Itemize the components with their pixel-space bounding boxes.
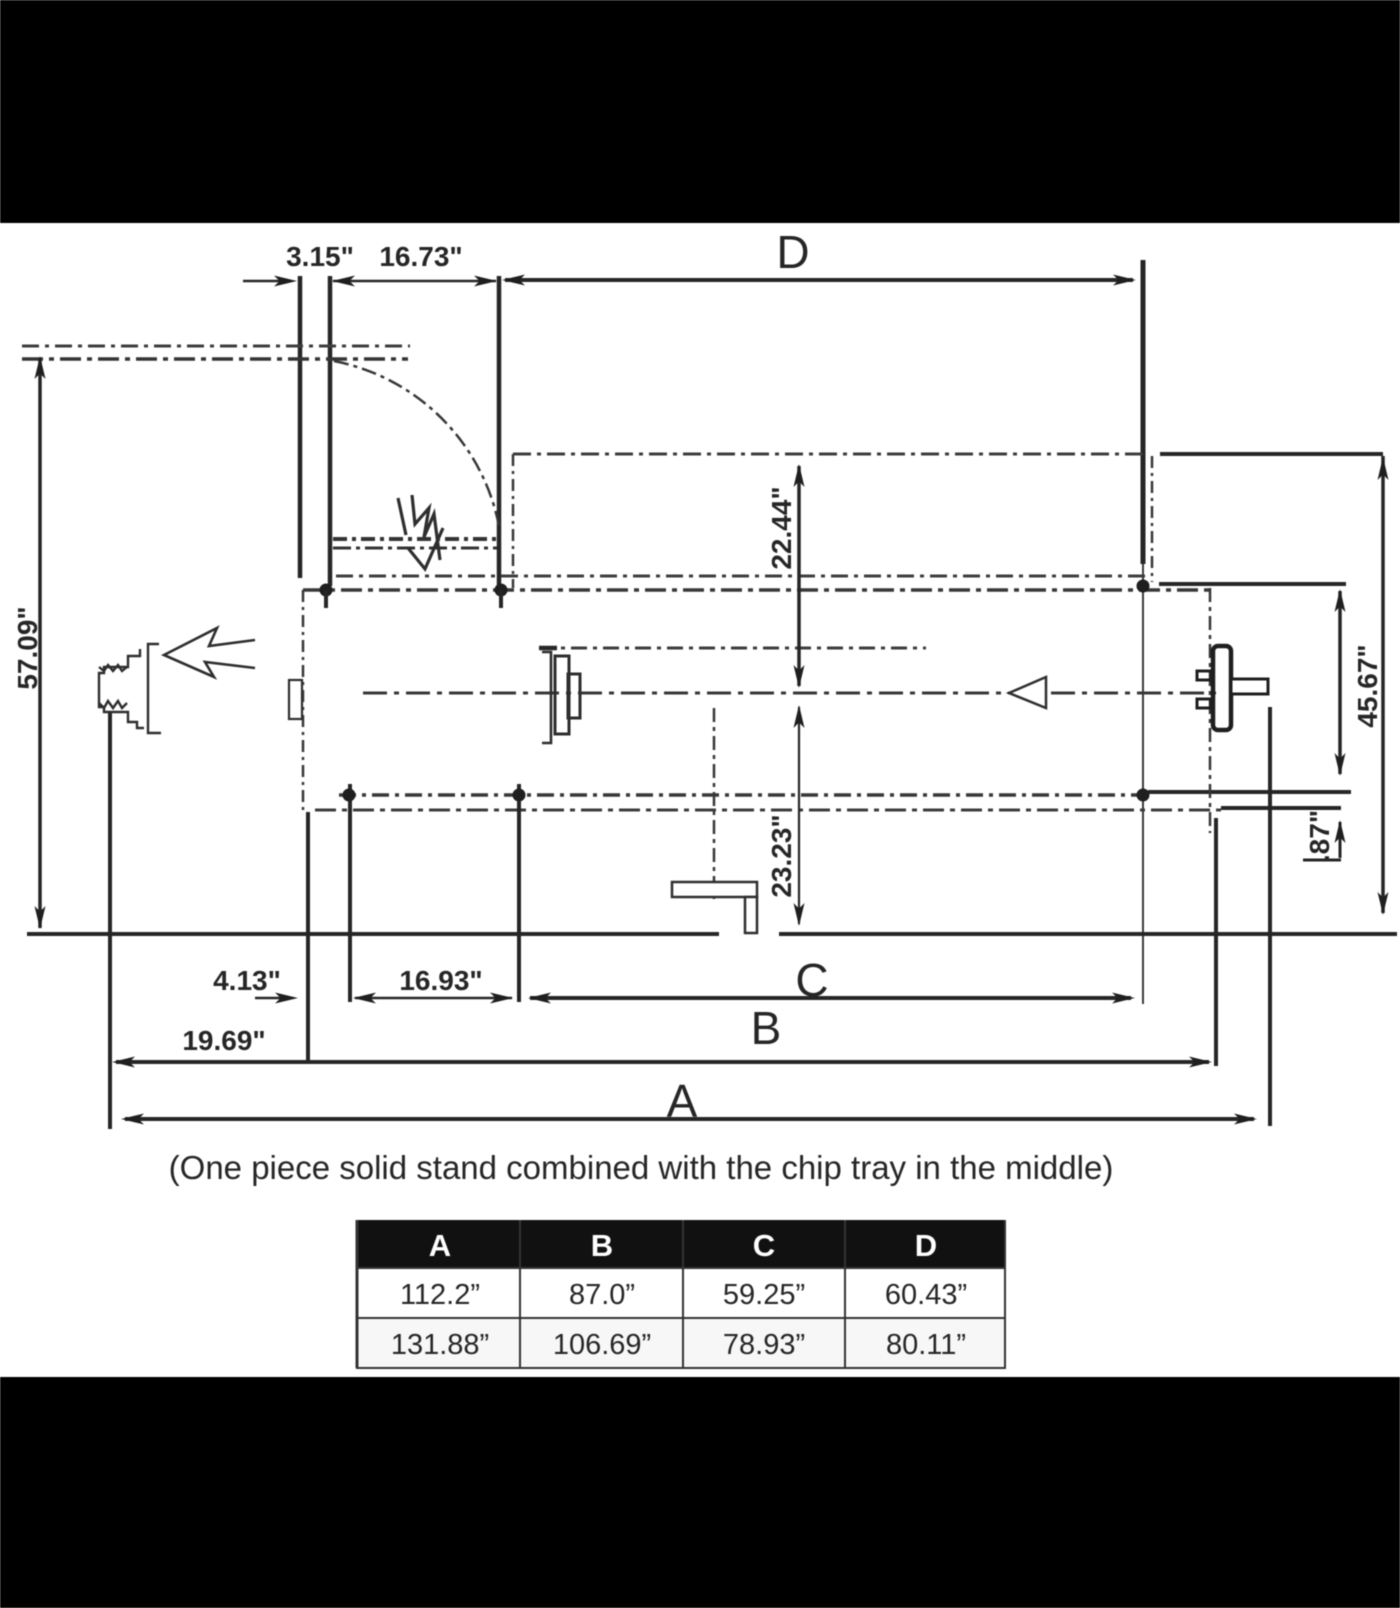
svg-text:16.93": 16.93" [399,965,482,996]
svg-text:106.69”: 106.69” [553,1329,651,1361]
svg-text:131.88”: 131.88” [391,1329,489,1361]
svg-text:B: B [591,1228,613,1263]
svg-text:59.25”: 59.25” [723,1279,805,1311]
svg-text:80.11”: 80.11” [886,1329,966,1361]
svg-text:D: D [915,1228,937,1263]
svg-text:D: D [776,226,809,278]
svg-text:112.2”: 112.2” [400,1279,480,1311]
svg-text:B: B [751,1002,782,1054]
svg-text:.87": .87" [1304,810,1335,862]
svg-text:3.15": 3.15" [286,241,354,272]
svg-text:C: C [795,954,828,1006]
svg-text:57.09": 57.09" [12,606,43,689]
svg-text:16.73": 16.73" [379,241,462,272]
svg-text:23.23": 23.23" [766,814,797,897]
svg-text:19.69": 19.69" [182,1025,265,1056]
svg-text:87.0”: 87.0” [569,1279,635,1311]
svg-text:22.44": 22.44" [766,486,797,569]
svg-text:45.67": 45.67" [1352,644,1383,727]
svg-text:78.93”: 78.93” [723,1329,805,1361]
svg-text:60.43”: 60.43” [885,1279,967,1311]
svg-text:A: A [667,1075,698,1127]
svg-text:4.13": 4.13" [213,965,281,996]
svg-text:A: A [429,1228,451,1263]
svg-text:C: C [753,1228,775,1263]
svg-text:(One piece solid stand combine: (One piece solid stand combined with the… [169,1149,1114,1186]
